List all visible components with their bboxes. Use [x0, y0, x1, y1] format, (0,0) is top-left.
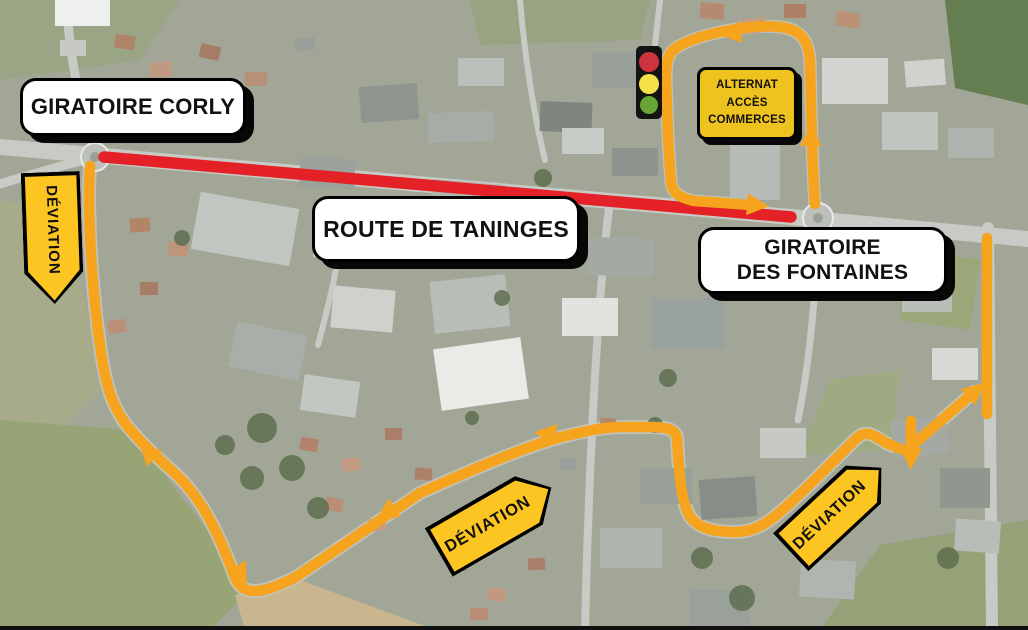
- deviation-sign-west: DÉVIATION: [21, 171, 85, 305]
- route-de-taninges-label: ROUTE DE TANINGES: [312, 196, 580, 262]
- alternat-line3: COMMERCES: [700, 112, 794, 130]
- giratoire-des-fontaines-line1: GIRATOIRE: [701, 236, 944, 260]
- alternat-acces-commerces-box: ALTERNAT ACCÈS COMMERCES: [697, 67, 797, 140]
- traffic-light-green-lamp: [640, 96, 658, 114]
- traffic-light-yellow-lamp: [639, 74, 659, 94]
- giratoire-corly-label: GIRATOIRE CORLY: [20, 78, 246, 136]
- bottom-edge-strip: [0, 626, 1028, 630]
- alternat-line2: ACCÈS: [700, 95, 794, 113]
- alternat-line1: ALTERNAT: [700, 77, 794, 95]
- deviation-sign-text-wrap: DÉVIATION: [21, 171, 85, 305]
- giratoire-des-fontaines-label: GIRATOIRE DES FONTAINES: [698, 227, 947, 294]
- giratoire-des-fontaines-line2: DES FONTAINES: [701, 261, 944, 285]
- giratoire-corly-text: GIRATOIRE CORLY: [23, 94, 243, 119]
- route-de-taninges-text: ROUTE DE TANINGES: [315, 216, 577, 242]
- traffic-light-red-lamp: [639, 52, 659, 72]
- traffic-light-icon: [636, 46, 662, 119]
- deviation-map: GIRATOIRE CORLY ROUTE DE TANINGES GIRATO…: [0, 0, 1028, 630]
- deviation-sign-text: DÉVIATION: [42, 185, 62, 275]
